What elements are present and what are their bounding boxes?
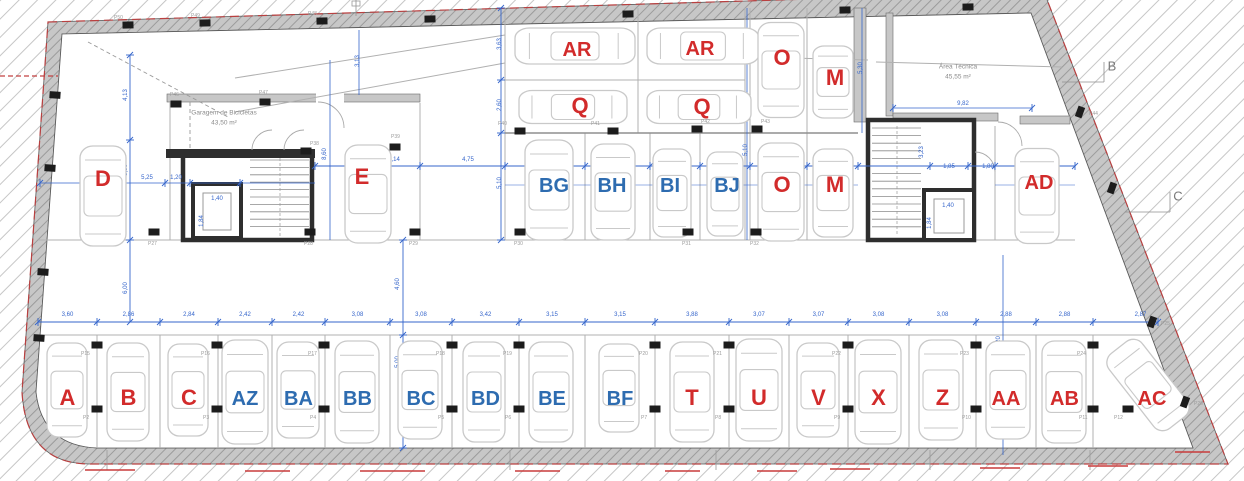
dimension-label: 1,40 bbox=[942, 203, 954, 209]
dimension-label: 3,60 bbox=[62, 312, 74, 318]
structural-column bbox=[971, 406, 982, 413]
parking-space-label-T: T bbox=[685, 385, 699, 410]
column-label: P20 bbox=[639, 351, 648, 357]
structural-column bbox=[122, 21, 133, 28]
column-label: P2 bbox=[83, 415, 89, 421]
structural-column bbox=[319, 342, 330, 349]
structural-column bbox=[305, 229, 316, 236]
structural-column bbox=[260, 99, 271, 106]
parking-space-label-Z: Z bbox=[936, 385, 949, 410]
column-label: P40 bbox=[498, 121, 507, 127]
structural-column bbox=[92, 406, 103, 413]
parking-space-label-AR: AR bbox=[686, 38, 715, 60]
dimension-label: 3,42 bbox=[480, 312, 492, 318]
structural-column bbox=[212, 342, 223, 349]
column-label: P4 bbox=[310, 415, 316, 421]
dimension-label: 3,07 bbox=[753, 312, 765, 318]
dimension-label: 9,82 bbox=[957, 101, 969, 107]
parking-space-label-A: A bbox=[60, 385, 76, 410]
structural-column bbox=[514, 406, 525, 413]
parking-space-label-D: D bbox=[95, 166, 111, 191]
structural-column bbox=[199, 19, 210, 26]
dimension-label: 3,15 bbox=[614, 312, 626, 318]
room-label-technical-area: Área Técnica 45,55 m² bbox=[939, 62, 977, 82]
dimension-label: 3,88 bbox=[686, 312, 698, 318]
column-label: P41 bbox=[591, 121, 600, 127]
parking-space-label-AB: AB bbox=[1050, 388, 1079, 410]
interior-wall bbox=[167, 94, 420, 102]
dimension-label: 3,08 bbox=[415, 312, 427, 318]
parking-space-label-M: M bbox=[826, 65, 844, 90]
column-label: P24 bbox=[1077, 351, 1086, 357]
structural-column bbox=[37, 268, 48, 276]
dimension-label: 3,07 bbox=[813, 312, 825, 318]
structural-column bbox=[319, 406, 330, 413]
dimension-label: 3,13 bbox=[355, 55, 361, 67]
column-label: P7 bbox=[641, 415, 647, 421]
dimension-label: 5,30 bbox=[858, 62, 864, 74]
parking-space-label-BD: BD bbox=[471, 388, 500, 410]
dimension-label: 2,88 bbox=[1059, 312, 1071, 318]
dimension-label: 1,85 bbox=[943, 164, 955, 170]
structural-column bbox=[515, 128, 526, 135]
dimension-label: 2,42 bbox=[239, 312, 251, 318]
structural-column bbox=[971, 342, 982, 349]
structural-column bbox=[751, 229, 762, 236]
structural-column bbox=[1123, 406, 1134, 413]
parking-space-label-BJ: BJ bbox=[714, 175, 740, 197]
room-area: 45,55 m² bbox=[939, 72, 977, 82]
parking-space-label-AZ: AZ bbox=[232, 388, 259, 410]
parking-space-label-Q: Q bbox=[571, 93, 588, 118]
column-label: P9 bbox=[834, 415, 840, 421]
structural-column bbox=[515, 229, 526, 236]
parking-space-label-E: E bbox=[355, 164, 370, 189]
parking-space-label-BE: BE bbox=[538, 388, 566, 410]
dimension-label: 3,63 bbox=[497, 38, 503, 50]
column-label: P38 bbox=[310, 141, 319, 147]
structural-column bbox=[301, 148, 312, 155]
structural-column bbox=[447, 406, 458, 413]
structural-column bbox=[316, 17, 327, 24]
structural-column bbox=[1088, 342, 1099, 349]
floor-plan-drawing: 5,251,205,144,755,303,082,402,402,602,65… bbox=[0, 0, 1244, 481]
column-label: P10 bbox=[962, 415, 971, 421]
parking-space-label-AR: AR bbox=[563, 39, 592, 61]
parking-space-label-Q: Q bbox=[693, 94, 710, 119]
column-label: P18 bbox=[436, 351, 445, 357]
column-label: P50 bbox=[114, 15, 123, 21]
dimension-label: 1,84 bbox=[199, 215, 205, 227]
structural-column bbox=[171, 101, 182, 108]
column-label: P30 bbox=[514, 241, 523, 247]
dimension-label: 1,40 bbox=[211, 196, 223, 202]
column-label: P22 bbox=[832, 351, 841, 357]
structural-column bbox=[650, 342, 661, 349]
dimension-label: 2,88 bbox=[1000, 312, 1012, 318]
dimension-label: 5,25 bbox=[141, 175, 153, 181]
column-label: P17 bbox=[308, 351, 317, 357]
column-label: P47 bbox=[259, 90, 268, 96]
structural-column bbox=[843, 342, 854, 349]
column-label: P8 bbox=[715, 415, 721, 421]
dimension-label: 4,13 bbox=[123, 89, 129, 101]
structural-column bbox=[622, 10, 633, 17]
column-label: P15 bbox=[81, 351, 90, 357]
parking-space-label-X: X bbox=[871, 385, 886, 410]
column-label: P28 bbox=[304, 241, 313, 247]
car-outline bbox=[80, 146, 126, 246]
garage-floor-plan: 5,251,205,144,755,303,082,402,402,602,65… bbox=[0, 0, 1244, 481]
dimension-label: 2,87 bbox=[1135, 312, 1147, 318]
structural-column bbox=[447, 342, 458, 349]
dimension-label: 8,60 bbox=[322, 148, 328, 160]
dimension-label: 1,84 bbox=[927, 217, 933, 229]
parking-space-label-C: C bbox=[181, 385, 197, 410]
column-label: P27 bbox=[148, 241, 157, 247]
column-label: P44 bbox=[1089, 111, 1098, 117]
parking-space-label-O: O bbox=[773, 45, 790, 70]
interior-wall bbox=[886, 13, 893, 116]
dimension-label: 3,23 bbox=[919, 146, 925, 158]
parking-space-label-BG: BG bbox=[539, 175, 569, 197]
structural-column bbox=[962, 3, 973, 10]
dimension-label: 5,10 bbox=[743, 144, 749, 156]
column-label: P12 bbox=[1114, 415, 1123, 421]
structural-column bbox=[724, 406, 735, 413]
column-label: P29 bbox=[409, 241, 418, 247]
grid-marker-c: C bbox=[1173, 189, 1182, 204]
structural-column bbox=[724, 342, 735, 349]
structural-column bbox=[410, 229, 421, 236]
parking-space-label-BH: BH bbox=[598, 175, 627, 197]
column-label: P19 bbox=[503, 351, 512, 357]
parking-space-label-BI: BI bbox=[660, 175, 680, 197]
dimension-label: 6,00 bbox=[123, 282, 129, 294]
dimension-label: 3,15 bbox=[546, 312, 558, 318]
column-label: P3 bbox=[203, 415, 209, 421]
dimension-label: 1,80 bbox=[982, 164, 994, 170]
structural-column bbox=[843, 406, 854, 413]
car-outline bbox=[345, 145, 391, 243]
room-name: Área Técnica bbox=[939, 62, 977, 72]
structural-column bbox=[149, 229, 160, 236]
interior-wall bbox=[1020, 116, 1070, 124]
dimension-label: 2,60 bbox=[497, 99, 503, 111]
column-label: P21 bbox=[713, 351, 722, 357]
column-label: P31 bbox=[682, 241, 691, 247]
parking-space-label-V: V bbox=[811, 385, 826, 410]
parking-space-label-BF: BF bbox=[607, 388, 634, 410]
car-outline bbox=[1015, 149, 1059, 244]
column-label: P32 bbox=[750, 241, 759, 247]
dimension-label: 3,08 bbox=[352, 312, 364, 318]
room-area: 43,50 m² bbox=[191, 118, 256, 128]
structural-column bbox=[92, 342, 103, 349]
grid-marker-b: B bbox=[1108, 59, 1117, 74]
structural-column bbox=[212, 406, 223, 413]
column-label: P39 bbox=[391, 134, 400, 140]
structural-column bbox=[692, 126, 703, 133]
room-label-bike-garage: Garagem de Bicicletas 43,50 m² bbox=[191, 108, 256, 128]
structural-column bbox=[752, 126, 763, 133]
parking-space-label-AC: AC bbox=[1138, 388, 1167, 410]
parking-space-label-B: B bbox=[121, 385, 137, 410]
column-label: P6 bbox=[505, 415, 511, 421]
parking-space-label-BB: BB bbox=[343, 388, 372, 410]
structural-column bbox=[839, 6, 850, 13]
column-label: P42 bbox=[701, 119, 710, 125]
column-label: P23 bbox=[960, 351, 969, 357]
structural-column bbox=[1088, 406, 1099, 413]
structural-column bbox=[44, 164, 55, 172]
structural-column bbox=[424, 15, 435, 22]
car-outline bbox=[758, 23, 804, 118]
column-label: P46 bbox=[170, 92, 179, 98]
room-name: Garagem de Bicicletas bbox=[191, 108, 256, 118]
structural-column bbox=[49, 91, 60, 99]
column-label: P26 bbox=[1194, 401, 1203, 407]
structural-column bbox=[514, 342, 525, 349]
parking-space-label-O: O bbox=[773, 172, 790, 197]
parking-space-label-BC: BC bbox=[407, 388, 436, 410]
column-label: P25 bbox=[1161, 321, 1170, 327]
dimension-label: 5,10 bbox=[497, 177, 503, 189]
structural-column bbox=[683, 229, 694, 236]
parking-space-label-U: U bbox=[751, 385, 767, 410]
dimension-label: 4,60 bbox=[395, 278, 401, 290]
dimension-label: 1,20 bbox=[170, 175, 182, 181]
structural-column bbox=[33, 334, 44, 342]
structural-column bbox=[608, 128, 619, 135]
dimension-label: 2,84 bbox=[183, 312, 195, 318]
column-label: P11 bbox=[1079, 415, 1088, 421]
dimension-label: 4,75 bbox=[462, 157, 474, 163]
structural-column bbox=[650, 406, 661, 413]
dimension-label: 3,08 bbox=[873, 312, 885, 318]
structural-column bbox=[390, 144, 401, 151]
column-label: P43 bbox=[761, 119, 770, 125]
parking-space-label-M: M bbox=[826, 172, 844, 197]
dimension-label: 3,08 bbox=[937, 312, 949, 318]
dimension-label: 2,42 bbox=[293, 312, 305, 318]
column-label: P49 bbox=[191, 13, 200, 19]
dimension-label: 2,86 bbox=[123, 312, 135, 318]
column-label: P16 bbox=[201, 351, 210, 357]
parking-space-label-AD: AD bbox=[1025, 172, 1054, 194]
parking-space-label-AA: AA bbox=[992, 388, 1021, 410]
column-label: P5 bbox=[438, 415, 444, 421]
column-label: P48 bbox=[308, 11, 317, 17]
parking-space-label-BA: BA bbox=[284, 388, 313, 410]
